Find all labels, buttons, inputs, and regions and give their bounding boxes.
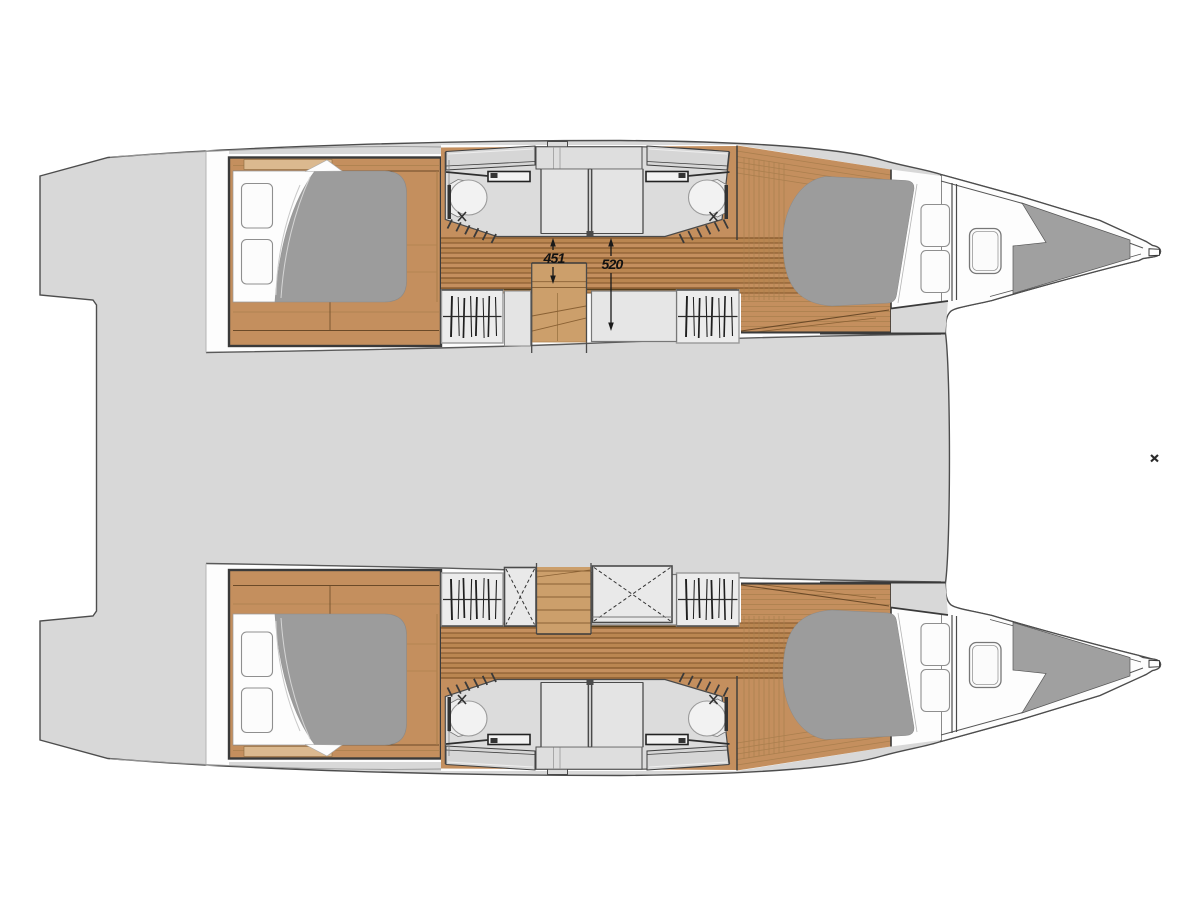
svg-text:451: 451 [543, 250, 566, 266]
svg-text:520: 520 [602, 256, 624, 272]
